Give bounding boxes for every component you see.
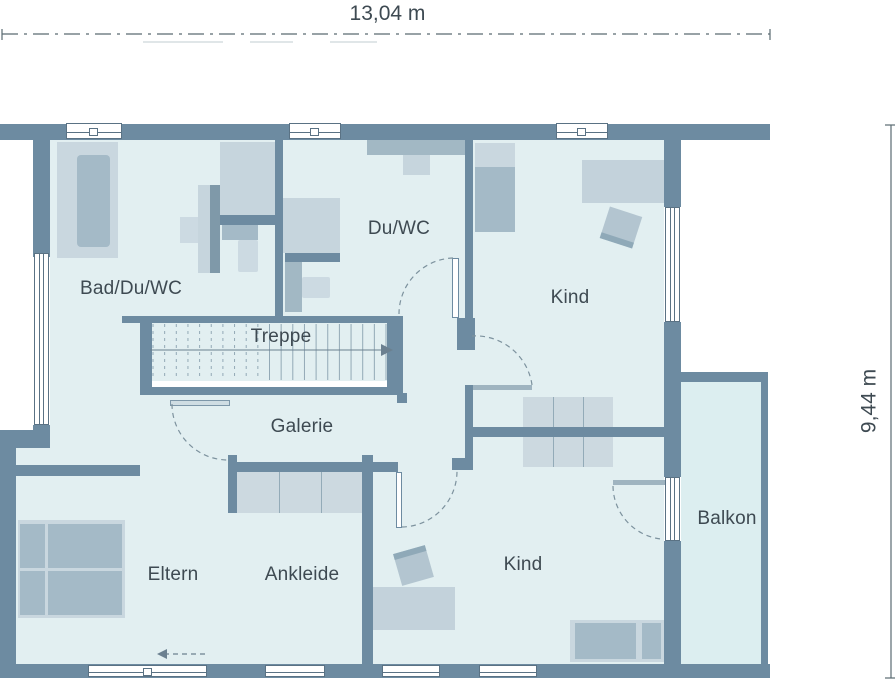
window-mullion [674, 208, 675, 321]
window-mullion [266, 672, 324, 673]
door-leaf-duwc [452, 258, 459, 318]
window-mullion [383, 672, 439, 673]
window-mullion [43, 254, 44, 424]
window-handle [577, 128, 586, 136]
dimension-width-label: 13,04 m [345, 2, 430, 26]
room-label-bad: Bad/Du/WC [80, 278, 182, 300]
closet-kind-top [523, 397, 613, 427]
window-mullion [670, 478, 671, 540]
window [556, 123, 608, 139]
wall-duwc-stub [457, 318, 475, 350]
desk-kind-bottom [373, 587, 455, 630]
washbasin-duwc [403, 155, 430, 175]
wall-right-lower [664, 541, 681, 678]
counter-duwc [367, 140, 465, 155]
wc-tank-bad [222, 225, 258, 240]
wall-ankleide-right [362, 455, 373, 664]
wall-right-mid [664, 322, 681, 477]
wall-stair-right [387, 323, 403, 395]
bed-eltern-mattress-1 [48, 524, 122, 568]
wall-balcony-top [681, 372, 768, 382]
wall-left-upper [33, 140, 50, 257]
window-mullion [480, 672, 536, 673]
door-leaf-kind-bottom [396, 472, 402, 528]
desk-kind-top [582, 160, 664, 203]
shower-partition [198, 185, 210, 273]
wall-kind-top-left [465, 385, 473, 460]
wall-ankleide-left-stub [228, 455, 237, 513]
wall-balcony-right [761, 382, 768, 664]
window [665, 207, 680, 322]
window-mullion [670, 208, 671, 321]
wall-left-jog [0, 430, 50, 448]
washbasin-bad [180, 217, 198, 243]
room-label-kind-top: Kind [551, 287, 590, 309]
window [479, 665, 537, 677]
room-label-kind-bottom: Kind [504, 554, 543, 576]
door-leaf-balcony [613, 480, 665, 485]
room-label-duwc: Du/WC [368, 218, 430, 240]
shower-duwc [283, 198, 340, 253]
door-leaf-galerie [170, 400, 230, 406]
closet-ankleide [237, 467, 363, 513]
bed-eltern-pillow-2 [20, 571, 45, 615]
window [289, 123, 341, 139]
dimension-height-label: 9,44 m [858, 359, 882, 444]
wall-duwc-right [465, 140, 473, 338]
stair-landing-strip [152, 381, 387, 387]
shower-partition-edge [210, 185, 220, 273]
closet-divider [321, 467, 322, 513]
wall-left-lower [0, 448, 16, 664]
room-label-balkon: Balkon [697, 508, 756, 530]
closet-kind-bottom [523, 437, 613, 467]
room-label-treppe: Treppe [251, 326, 312, 348]
wall-eltern-top [16, 465, 140, 476]
closet-divider [583, 397, 584, 427]
wall-kind-top-left-jog [452, 458, 473, 470]
closet-divider [553, 397, 554, 427]
wall-stair-top [122, 316, 403, 323]
window [382, 665, 440, 677]
bathtub [77, 155, 110, 247]
wc-bowl-duwc [302, 277, 330, 298]
wall-bad-du-divider [275, 140, 283, 320]
window [34, 253, 49, 425]
closet-divider [279, 467, 280, 513]
bed-kind-bottom-pillow [642, 623, 661, 659]
balcony-door-glass [665, 477, 680, 541]
window [265, 665, 325, 677]
window-handle [143, 668, 152, 676]
window [88, 665, 207, 677]
bed-kind-bottom-mattress [575, 623, 636, 659]
window-handle [89, 128, 98, 136]
shower-duwc-wall [285, 253, 340, 262]
wall-stair-bottom [140, 387, 403, 395]
wall-kind-divider [472, 427, 681, 437]
wall-bad-wc-stub [220, 215, 275, 225]
window-handle [310, 128, 319, 136]
wall-stair-left [140, 316, 152, 395]
bed-kind-top-mattress [475, 167, 515, 232]
room-label-eltern: Eltern [148, 564, 199, 586]
wall-stair-jog [397, 393, 407, 403]
window-mullion [674, 478, 675, 540]
door-leaf-kind-top [473, 385, 532, 390]
room-label-galerie: Galerie [271, 416, 334, 438]
closet-divider [553, 437, 554, 467]
bed-eltern-mattress-2 [48, 571, 122, 615]
window-mullion [39, 254, 40, 424]
floor-plan: 13,04 m 9,44 m Bad/Du/WC Du/WC Kind Trep… [0, 0, 895, 682]
bed-eltern-pillow-1 [20, 524, 45, 568]
wc-tank-duwc [285, 262, 302, 312]
closet-divider [583, 437, 584, 467]
wc-bowl-bad [238, 240, 258, 272]
wall-right-upper [664, 140, 681, 207]
shower-bad [220, 142, 275, 215]
room-label-ankleide: Ankleide [265, 564, 339, 586]
window [66, 123, 122, 139]
